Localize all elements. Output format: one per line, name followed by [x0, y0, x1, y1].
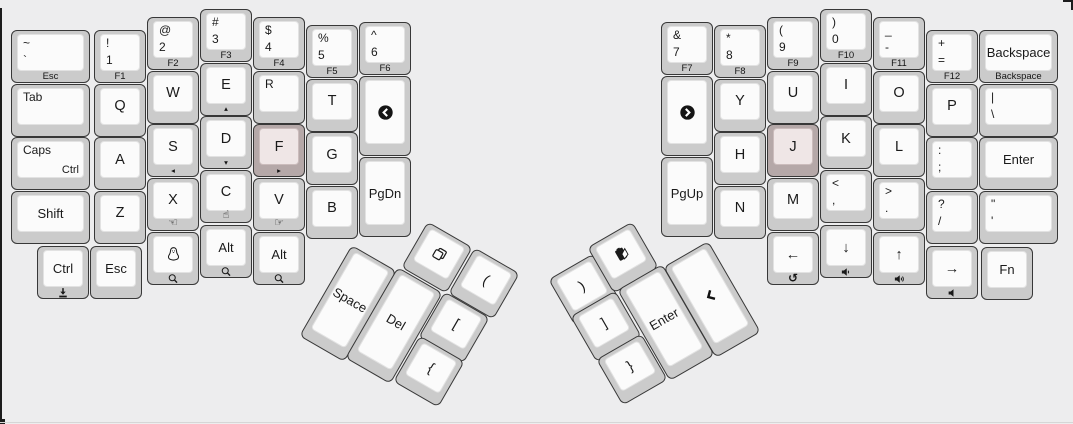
key-legend-front: ▸	[254, 165, 304, 176]
keycap-surface: $4	[259, 21, 299, 58]
keycap-surface: Enter	[985, 141, 1052, 178]
keycap-surface: R	[259, 75, 299, 112]
key-legend-center: A	[101, 142, 139, 177]
key-legend-center: (	[461, 255, 511, 304]
keycap-surface: N	[720, 190, 760, 227]
volume-up-icon	[874, 273, 924, 284]
key-f4[interactable]: $4F4	[253, 17, 305, 70]
key-e[interactable]: E▴	[200, 63, 252, 116]
window-edge-left	[0, 8, 2, 424]
key-f2[interactable]: @2F2	[147, 17, 199, 70]
key-legend-center: PgDn	[366, 162, 404, 224]
key-comma[interactable]: <,	[820, 170, 872, 223]
key-legend-topleft: )0	[832, 16, 863, 46]
key-v[interactable]: V☞	[253, 178, 305, 231]
keycap-surface: Q	[100, 88, 140, 125]
volume-mute-icon	[927, 287, 977, 298]
key-legend-center: ←	[774, 237, 812, 272]
key-c[interactable]: C☝	[200, 170, 252, 223]
key-legend-front: ☞	[254, 218, 304, 229]
keycap-surface: _-	[879, 21, 919, 58]
key-legend-center: PgUp	[668, 162, 706, 224]
key-legend-front: ☜	[148, 218, 198, 229]
key-legend-front: F12	[927, 71, 977, 82]
keycap-surface	[153, 236, 193, 273]
key-arrow-right[interactable]: →	[926, 246, 978, 299]
keycap-surface: Ctrl	[43, 250, 83, 287]
key-legend-center: H	[721, 137, 759, 172]
keycap-surface: →	[932, 250, 972, 287]
keycap-surface: #3	[206, 13, 246, 50]
keycap-surface: P	[932, 88, 972, 125]
key-legend-front: ▴	[201, 104, 251, 115]
key-legend-topleft: $4	[265, 24, 296, 54]
key-legend-center: ↓	[827, 230, 865, 265]
keycap-surface: PgUp	[667, 161, 707, 225]
keycap-surface: H	[720, 136, 760, 173]
key-legend-front: F10	[821, 50, 871, 61]
key-legend-front: F9	[768, 58, 818, 69]
window-edge-top-right	[1063, 0, 1073, 2]
key-w[interactable]: W	[147, 71, 199, 124]
key-legend-center: G	[313, 137, 351, 172]
tux-icon	[154, 237, 192, 272]
key-legend-center: Backspace	[986, 35, 1051, 70]
keycap-surface: &7	[667, 26, 707, 63]
keycap-surface: %5	[312, 29, 352, 66]
key-legend-center: Alt	[260, 237, 298, 272]
key-nav-back[interactable]	[359, 76, 411, 156]
keycap-surface: ↓	[826, 229, 866, 266]
key-legend-center: B	[313, 191, 351, 226]
keycap-surface	[412, 228, 465, 280]
key-arrow-down[interactable]: ↓	[820, 225, 872, 278]
key-legend-center: K	[827, 121, 865, 156]
key-legend-topleft: :;	[938, 144, 969, 174]
keycap-surface: Y	[720, 83, 760, 120]
keycap-surface: J	[773, 128, 813, 165]
key-legend-topleft: +=	[938, 37, 969, 67]
key-s[interactable]: S◂	[147, 124, 199, 177]
volume-down-icon	[821, 266, 871, 277]
key-esc-bottom[interactable]: Esc	[90, 246, 142, 299]
key-legend-topleft: R	[265, 78, 296, 108]
key-period[interactable]: >.	[873, 178, 925, 231]
keycap-surface: Tab	[17, 88, 84, 125]
keycap-surface	[667, 80, 707, 144]
key-legend-center: Q	[101, 89, 139, 124]
key-pipe[interactable]: |\	[979, 84, 1058, 137]
key-legend-front: Backspace	[980, 71, 1057, 82]
key-f6[interactable]: ^6F6	[359, 22, 411, 75]
key-f11[interactable]: _-F11	[873, 17, 925, 70]
keycap-surface: C	[206, 174, 246, 211]
keycap-surface: Backspace	[985, 34, 1052, 71]
key-f12[interactable]: +=F12	[926, 30, 978, 83]
key-legend-front: Esc	[12, 71, 89, 82]
keycap-surface: M	[773, 182, 813, 219]
keycap-surface: |\	[985, 88, 1052, 125]
keycap-surface: E	[206, 67, 246, 104]
keycap-surface: ~`	[17, 34, 84, 71]
keyboard-layout-canvas: ~`EscTabCapsCtrlShiftCtrlEsc!1F1QAZ@2F2W…	[0, 0, 1073, 424]
copy-icon	[414, 229, 464, 278]
keycap-surface: B	[312, 190, 352, 227]
key-l[interactable]: L	[873, 124, 925, 177]
key-alt-left-2[interactable]: Alt	[253, 232, 305, 285]
keycap-surface: Fn	[987, 251, 1027, 288]
keycap-surface: ^6	[365, 26, 405, 63]
keycap-surface: ←	[773, 236, 813, 273]
keycap-surface: )0	[826, 13, 866, 50]
key-legend-front: F8	[715, 66, 765, 77]
key-legend-center: U	[774, 76, 812, 111]
key-legend-topleft: @2	[159, 24, 190, 54]
key-legend-topleft: _-	[885, 24, 916, 54]
key-legend-center: Ctrl	[44, 251, 82, 286]
keycap-surface	[365, 80, 405, 144]
key-legend-front: F6	[360, 63, 410, 74]
key-legend-center: Y	[721, 84, 759, 119]
key-f3[interactable]: #3F3	[200, 9, 252, 62]
key-p[interactable]: P	[926, 84, 978, 137]
key-fn[interactable]: Fn	[981, 247, 1033, 300]
key-legend-center: V	[260, 183, 298, 218]
keycap-surface: "'	[985, 195, 1052, 232]
keycap-surface: Z	[100, 195, 140, 232]
key-f10[interactable]: )0F10	[820, 9, 872, 62]
key-legend-topleft: ^6	[371, 29, 402, 59]
key-f7[interactable]: &7F7	[661, 22, 713, 75]
keycap-surface: K	[826, 120, 866, 157]
key-u[interactable]: U	[767, 71, 819, 124]
key-grave-esc[interactable]: ~`Esc	[11, 30, 90, 83]
key-legend-center: F	[260, 129, 298, 164]
key-legend-topleft: Tab	[23, 91, 81, 121]
key-legend-front: ☝	[201, 210, 251, 221]
keycap-surface: PgDn	[365, 161, 405, 225]
key-arrow-left[interactable]: ←↺	[767, 232, 819, 285]
key-tab[interactable]: Tab	[11, 84, 90, 137]
key-legend-topleft: !1	[106, 37, 137, 67]
key-f5[interactable]: %5F5	[306, 25, 358, 78]
key-a[interactable]: A	[94, 137, 146, 190]
keycap-surface: G	[312, 136, 352, 173]
key-caps-ctrl[interactable]: CapsCtrl	[11, 137, 90, 190]
key-k[interactable]: K	[820, 116, 872, 169]
key-f9[interactable]: (9F9	[767, 17, 819, 70]
key-enter-right[interactable]: Enter	[979, 137, 1058, 190]
key-legend-front: ↺	[768, 272, 818, 283]
key-legend-topleft: ?/	[938, 198, 969, 228]
keycap-surface: >.	[879, 182, 919, 219]
keycap-surface: ?/	[932, 195, 972, 232]
key-legend-front: F5	[307, 66, 357, 77]
key-legend-center: Shift	[18, 196, 83, 231]
key-legend-front: F7	[662, 63, 712, 74]
magnifier-icon	[148, 273, 198, 284]
key-f[interactable]: F▸	[253, 124, 305, 177]
key-pgup[interactable]: PgUp	[661, 157, 713, 237]
key-legend-front: F11	[874, 58, 924, 69]
key-semicolon[interactable]: :;	[926, 137, 978, 190]
keycap-surface: +=	[932, 34, 972, 71]
key-legend-bottomright: Ctrl	[62, 164, 79, 176]
keycap-surface: Alt	[259, 236, 299, 273]
keycap-surface: L	[879, 128, 919, 165]
keycap-surface: <,	[826, 174, 866, 211]
key-legend-front: F2	[148, 58, 198, 69]
key-legend-center: I	[827, 68, 865, 103]
keycap-surface: T	[312, 83, 352, 120]
keycap-surface: *8	[720, 29, 760, 66]
key-legend-topleft: &7	[673, 29, 704, 59]
key-legend-topleft: ~`	[23, 37, 81, 67]
keycap-surface: (	[459, 254, 512, 306]
key-legend-center: L	[880, 129, 918, 164]
keycap-surface: A	[100, 141, 140, 178]
keycap-surface: ↑	[879, 236, 919, 273]
key-legend-center: Z	[101, 196, 139, 231]
key-legend-center: J	[774, 129, 812, 164]
key-legend-topleft: |\	[991, 91, 1049, 121]
key-legend-topleft: >.	[885, 185, 916, 215]
key-legend-center: P	[933, 89, 971, 124]
key-legend-center: Fn	[988, 252, 1026, 287]
keycap-surface: :;	[932, 141, 972, 178]
key-legend-front: ▾	[201, 157, 251, 168]
keycap-surface: X	[153, 182, 193, 219]
key-backspace[interactable]: BackspaceBackspace	[979, 30, 1058, 83]
key-f1[interactable]: !1F1	[94, 30, 146, 83]
key-legend-center: ↑	[880, 237, 918, 272]
key-slash[interactable]: ?/	[926, 191, 978, 244]
keycap-surface: D	[206, 120, 246, 157]
keycap-surface: Alt	[206, 229, 246, 266]
key-legend-center: Esc	[97, 251, 135, 286]
key-r[interactable]: R	[253, 71, 305, 124]
key-quote[interactable]: "'	[979, 191, 1058, 244]
key-n[interactable]: N	[714, 186, 766, 239]
keycap-surface: O	[879, 75, 919, 112]
keycap-surface: Esc	[96, 250, 136, 287]
keycap-surface: V	[259, 182, 299, 219]
key-legend-center: C	[207, 175, 245, 210]
key-legend-center: D	[207, 121, 245, 156]
key-alt-left[interactable]: Alt	[200, 225, 252, 278]
key-b[interactable]: B	[306, 186, 358, 239]
magnifier-icon	[201, 266, 251, 277]
key-g[interactable]: G	[306, 132, 358, 185]
key-pgdn[interactable]: PgDn	[359, 157, 411, 237]
paste-icon	[596, 229, 646, 278]
key-q[interactable]: Q	[94, 84, 146, 137]
key-legend-front: F4	[254, 58, 304, 69]
circle-chevron-left-icon	[366, 81, 404, 143]
key-arrow-up[interactable]: ↑	[873, 232, 925, 285]
key-legend-front: F3	[201, 50, 251, 61]
keycap-surface: CapsCtrl	[17, 141, 84, 178]
key-legend-topleft: (9	[779, 24, 810, 54]
key-h[interactable]: H	[714, 132, 766, 185]
key-legend-center: N	[721, 191, 759, 226]
key-z[interactable]: Z	[94, 191, 146, 244]
key-d[interactable]: D▾	[200, 116, 252, 169]
key-t[interactable]: T	[306, 79, 358, 132]
key-legend-topleft: "'	[991, 198, 1049, 228]
key-nav-forward[interactable]	[661, 76, 713, 156]
circle-chevron-right-icon	[668, 81, 706, 143]
keycap-surface: U	[773, 75, 813, 112]
key-legend-topleft: *8	[726, 32, 757, 62]
download-icon	[38, 287, 88, 298]
key-legend-center: T	[313, 84, 351, 119]
key-legend-center: S	[154, 129, 192, 164]
key-o[interactable]: O	[873, 71, 925, 124]
key-legend-center: Alt	[207, 230, 245, 265]
key-y[interactable]: Y	[714, 79, 766, 132]
magnifier-icon	[254, 273, 304, 284]
key-legend-topleft: #3	[212, 16, 243, 46]
key-legend-center: O	[880, 76, 918, 111]
key-legend-topleft: <,	[832, 177, 863, 207]
key-legend-center: W	[154, 76, 192, 111]
key-legend-front: ◂	[148, 165, 198, 176]
key-legend-front: F1	[95, 71, 145, 82]
key-m[interactable]: M	[767, 178, 819, 231]
key-legend-center: →	[933, 251, 971, 286]
keycap-surface: !1	[100, 34, 140, 71]
key-f8[interactable]: *8F8	[714, 25, 766, 78]
keycap-surface: S	[153, 128, 193, 165]
key-tux[interactable]	[147, 232, 199, 285]
key-ctrl-left[interactable]: Ctrl	[37, 246, 89, 299]
key-legend-center: Enter	[986, 142, 1051, 177]
key-x[interactable]: X☜	[147, 178, 199, 231]
key-i[interactable]: I	[820, 63, 872, 116]
keycap-surface: W	[153, 75, 193, 112]
window-edge-bottom	[0, 422, 1073, 423]
key-j[interactable]: J	[767, 124, 819, 177]
key-legend-center: M	[774, 183, 812, 218]
keycap-surface: (9	[773, 21, 813, 58]
key-legend-center: X	[154, 183, 192, 218]
keycap-surface: Shift	[17, 195, 84, 232]
keycap-surface: F	[259, 128, 299, 165]
key-legend-center: E	[207, 68, 245, 103]
key-shift-left[interactable]: Shift	[11, 191, 90, 244]
key-legend-topleft: %5	[318, 32, 349, 62]
keycap-surface: I	[826, 67, 866, 104]
keycap-surface	[594, 228, 647, 280]
keycap-surface: @2	[153, 21, 193, 58]
